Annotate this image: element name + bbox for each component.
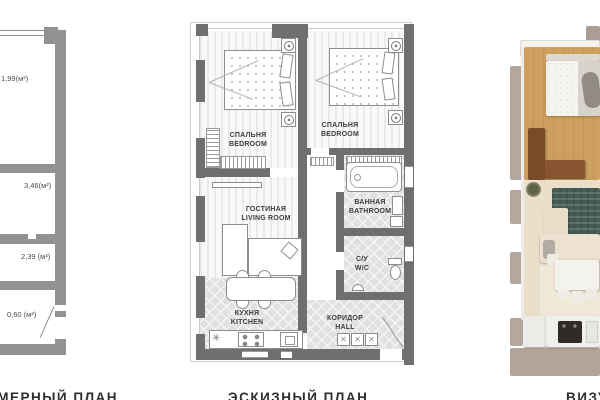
room-label-bedroom-2: СПАЛЬНЯ BEDROOM <box>300 122 380 140</box>
render-bed-headboard <box>546 54 600 61</box>
window-gap <box>242 351 268 358</box>
wall-segment <box>404 24 414 365</box>
sofa <box>248 238 302 276</box>
area-label: 1,99(м²) <box>1 74 28 83</box>
area-label: 2,39 (м²) <box>21 252 50 261</box>
door-gap <box>336 170 344 192</box>
toilet-bowl <box>390 265 401 280</box>
dining-table <box>226 277 296 301</box>
toilet-tank <box>388 258 402 265</box>
render-wardrobe <box>528 128 545 180</box>
render-dining-chair <box>572 291 583 302</box>
render-kitchen-sink <box>586 321 598 343</box>
sketch-plan-title: ЭСКИЗНЫЙ ПЛАН <box>228 390 360 400</box>
wardrobe <box>220 156 266 169</box>
tv-console <box>212 182 262 188</box>
room-label-wc: С/У W/C <box>336 256 388 274</box>
render-dining-chair <box>586 289 597 300</box>
ceiling-light-icon <box>281 112 296 127</box>
wc-sink <box>352 284 364 291</box>
wall-segment <box>55 30 66 305</box>
render-kitchen-cabinet <box>524 316 546 347</box>
wall-notch <box>28 234 36 239</box>
wall-segment <box>336 292 414 300</box>
measurement-plan-title: ОБМЕРНЫЙ ПЛАН <box>0 390 114 400</box>
area-label: 0,60 (м²) <box>7 310 36 319</box>
floor-plan-sheet: 1,99(м²) 3,46(м²) 2,39 (м²) 0,60 (м²) <box>0 0 600 400</box>
door-gap <box>311 148 329 155</box>
wall-segment <box>336 155 344 235</box>
wall-segment <box>196 60 205 102</box>
render-oven <box>558 321 582 343</box>
ceiling-light-icon <box>388 110 403 125</box>
wardrobe-x-icon: ✕ <box>337 333 350 346</box>
room-label-hall: КОРИДОР HALL <box>305 315 385 333</box>
visualization-title: ВИЗУАЛИЗАЦИЯ <box>566 390 600 400</box>
door-swing-line <box>40 306 55 337</box>
render-dining-table <box>555 260 599 290</box>
ceiling-light-icon <box>281 38 296 53</box>
wardrobe-x-icon: ✕ <box>351 333 364 346</box>
washing-machine <box>390 216 403 227</box>
wall-segment <box>0 164 55 173</box>
render-dining-chair <box>558 289 569 300</box>
bathtub-drain <box>354 174 361 181</box>
ceiling-light-icon <box>388 38 403 53</box>
wall-segment <box>336 228 414 236</box>
dishwasher-detail <box>285 336 295 345</box>
render-coffee-table <box>544 208 568 235</box>
wall-segment <box>196 168 270 177</box>
wall-segment <box>196 334 205 350</box>
wall-segment <box>196 24 208 36</box>
room-label-bedroom-1: СПАЛЬНЯ BEDROOM <box>202 132 294 150</box>
window-gap <box>405 246 413 262</box>
wardrobe-x-icon: ✕ <box>365 333 378 346</box>
window-gap <box>281 351 292 358</box>
render-wall <box>510 318 523 346</box>
wall-segment <box>55 311 66 317</box>
wall-segment <box>0 344 66 355</box>
render-plant <box>526 182 541 197</box>
wall-segment <box>196 196 205 242</box>
wall-segment <box>298 26 307 168</box>
sink-icon: ✳ <box>212 333 220 344</box>
entrance-door-gap <box>380 349 402 360</box>
room-label-living: ГОСТИНАЯ LIVING ROOM <box>222 206 310 224</box>
area-label: 3,46(м²) <box>24 181 51 190</box>
window-gap <box>405 166 413 188</box>
render-wall <box>510 348 600 376</box>
wall-segment <box>196 276 205 318</box>
wall-segment <box>0 281 55 290</box>
window-line <box>0 30 46 36</box>
radiator <box>310 157 334 166</box>
stove <box>238 332 264 347</box>
render-desk <box>545 160 585 179</box>
room-label-bathroom: ВАННАЯ BATHROOM <box>336 199 404 217</box>
room-label-kitchen: КУХНЯ KITCHEN <box>207 310 287 328</box>
sofa-chaise <box>222 224 248 276</box>
